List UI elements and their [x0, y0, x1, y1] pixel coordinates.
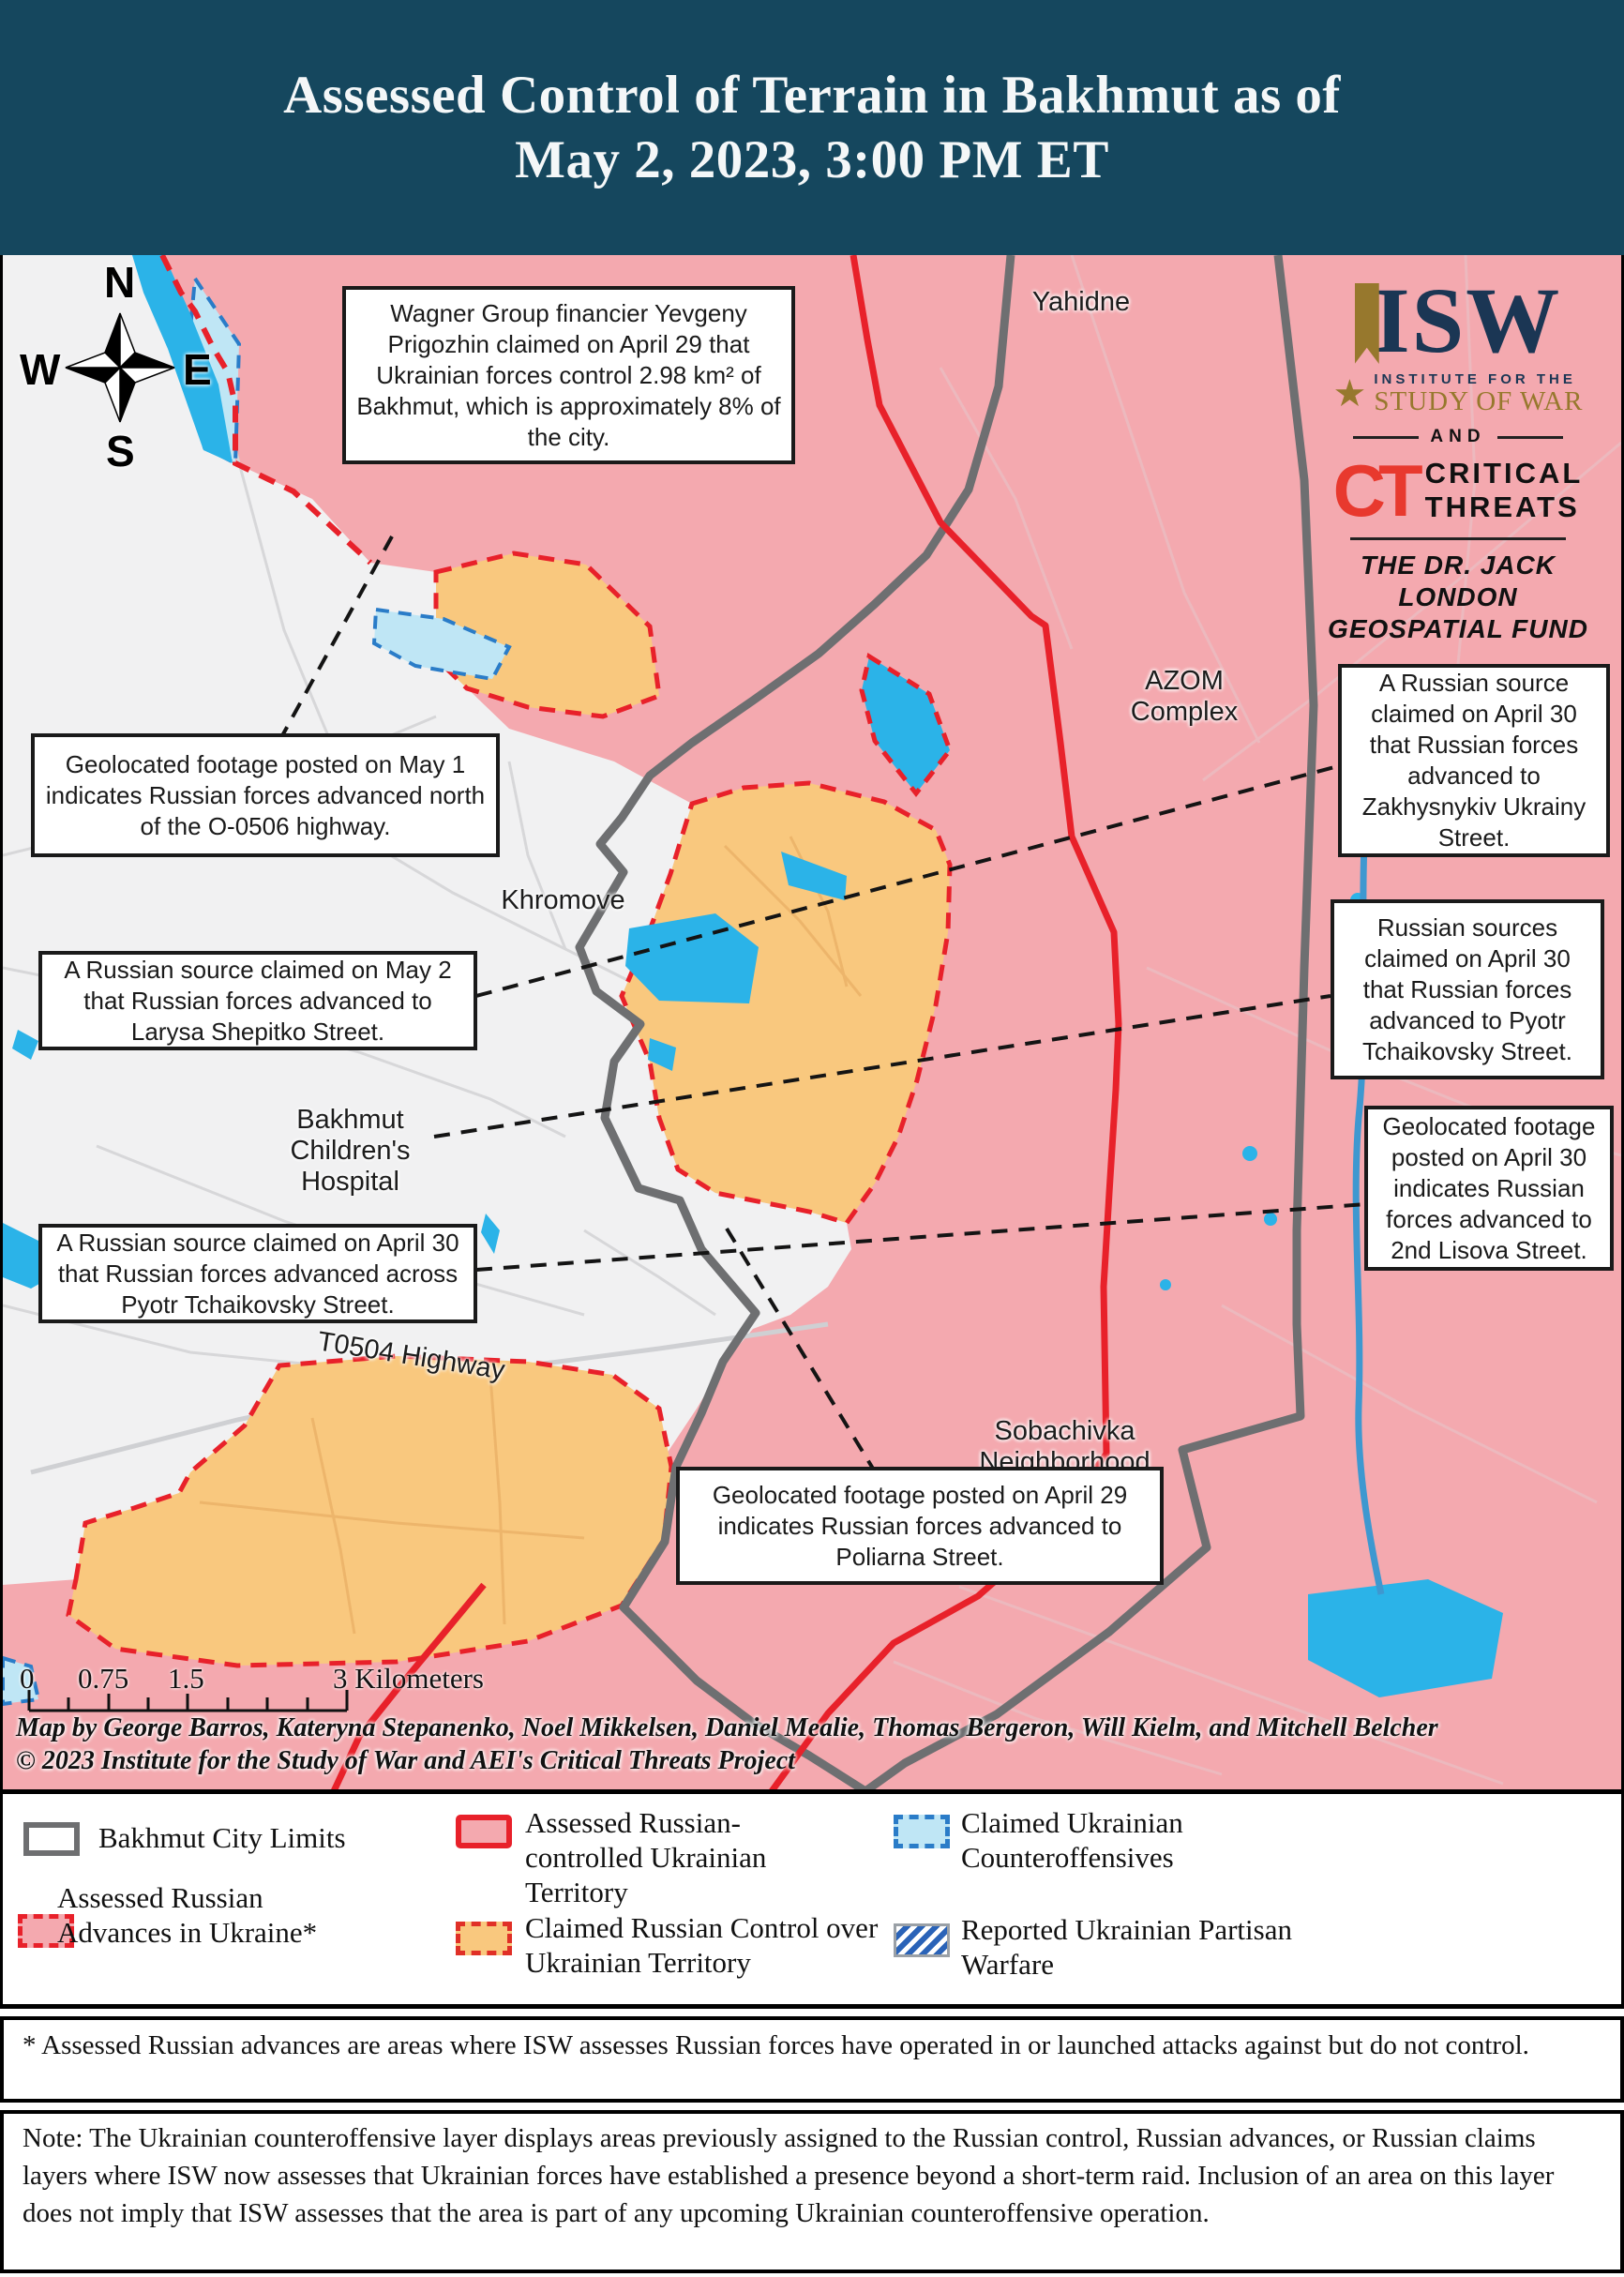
note-box: Note: The Ukrainian counteroffensive lay… — [0, 2110, 1624, 2273]
place-label-khromove: Khromove — [486, 885, 640, 916]
callout-poliarna: Geolocated footage posted on April 29 in… — [676, 1467, 1164, 1585]
isw-study-of-war-text: STUDY OF WAR — [1374, 387, 1583, 415]
map-copyright: © 2023 Institute for the Study of War an… — [16, 1746, 795, 1776]
scale-label-0: 0 — [20, 1662, 35, 1696]
isw-bakhmut-map-page: Assessed Control of Terrain in Bakhmut a… — [0, 0, 1624, 2277]
terrain-map: N W E S Yahidne AZOM Complex Khromove Ba… — [0, 255, 1624, 1791]
place-label-azom: AZOM Complex — [1105, 666, 1264, 728]
map-credits: Map by George Barros, Kateryna Stepanenk… — [16, 1713, 1438, 1743]
isw-star-icon: ★ — [1333, 377, 1367, 411]
partisan-warfare-swatch-icon — [894, 1923, 950, 1957]
place-label-yahidne: Yahidne — [1006, 287, 1156, 318]
compass-west-label: W — [20, 344, 60, 395]
title-line-2: May 2, 2023, 3:00 PM ET — [515, 128, 1109, 192]
threats-text: THREATS — [1425, 490, 1584, 524]
isw-ct-logo: ISW ★ INSTITUTE FOR THE STUDY OF WAR AND… — [1312, 276, 1604, 645]
russian-controlled-swatch-icon — [456, 1815, 512, 1848]
fund-line-2: GEOSPATIAL FUND — [1312, 613, 1604, 645]
claimed-russian-swatch-icon — [456, 1922, 512, 1955]
divider-line — [1497, 436, 1563, 439]
critical-threats-ct-icon: CT — [1333, 458, 1416, 523]
callout-may1-advance: Geolocated footage posted on May 1 indic… — [31, 733, 500, 857]
compass-east-label: E — [183, 344, 212, 395]
callout-larysa-shepitko: A Russian source claimed on May 2 that R… — [38, 951, 477, 1050]
isw-banner-icon — [1355, 283, 1379, 364]
scale-label-075: 0.75 — [78, 1662, 128, 1696]
isw-institute-text: INSTITUTE FOR THE — [1374, 371, 1583, 387]
title-line-1: Assessed Control of Terrain in Bakhmut a… — [283, 63, 1341, 128]
compass-north-label: N — [104, 257, 135, 308]
scale-label-3km: 3 Kilometers — [333, 1662, 484, 1696]
isw-wordmark: ISW — [1374, 276, 1562, 366]
place-label-childrens-hospital: Bakhmut Children's Hospital — [235, 1105, 465, 1198]
and-text: AND — [1430, 427, 1485, 447]
divider-line — [1350, 537, 1566, 540]
divider-line — [1353, 436, 1419, 439]
map-legend: Bakhmut City Limits Assessed Russian Adv… — [0, 1789, 1624, 2009]
map-title-banner: Assessed Control of Terrain in Bakhmut a… — [0, 0, 1624, 255]
scale-label-15: 1.5 — [168, 1662, 204, 1696]
callout-across-tchaikovsky: A Russian source claimed on April 30 tha… — [38, 1224, 477, 1323]
fund-line-1: THE DR. JACK LONDON — [1312, 550, 1604, 613]
footnote-box: * Assessed Russian advances are areas wh… — [0, 2016, 1624, 2103]
callout-2nd-lisova: Geolocated footage posted on April 30 in… — [1364, 1106, 1614, 1271]
city-limits-swatch-icon — [23, 1822, 80, 1856]
callout-pyotr-tchaikovsky: Russian sources claimed on April 30 that… — [1331, 899, 1604, 1079]
compass-south-label: S — [106, 426, 135, 476]
callout-zakhysnykiv: A Russian source claimed on April 30 tha… — [1338, 664, 1610, 857]
callout-wagner-claim: Wagner Group financier Yevgeny Prigozhin… — [342, 286, 795, 464]
counteroffensives-swatch-icon — [894, 1815, 950, 1848]
critical-text: CRITICAL — [1425, 457, 1584, 490]
